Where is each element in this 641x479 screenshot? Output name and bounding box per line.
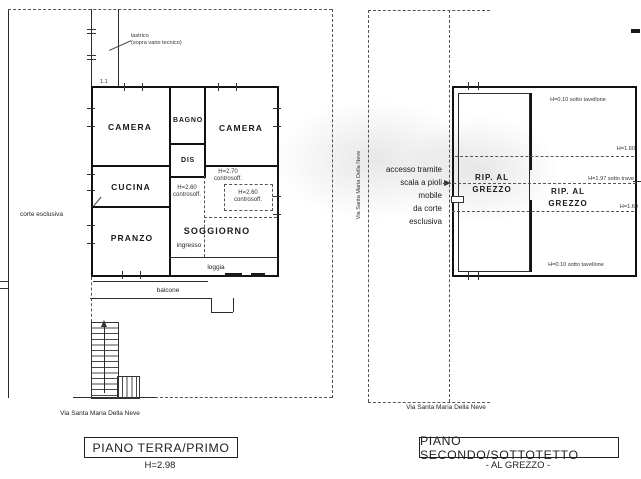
window-tick	[87, 29, 96, 30]
room-label-rip2-line2: GREZZO	[548, 198, 587, 210]
window-tick	[273, 108, 281, 109]
plan-left-title: PIANO TERRA/PRIMO	[92, 441, 229, 455]
wall-inner	[91, 206, 170, 208]
balcony-edge	[90, 298, 211, 299]
height-note-bottom-text: H=0.10 sotto tavellone	[548, 262, 604, 269]
access-note-line: da corte	[358, 202, 442, 215]
room-label-rip2-line1: RIP. AL	[548, 186, 587, 198]
height-note-top-text: H=0.10 sotto tavellone	[550, 97, 606, 104]
ceiling-note-1-text: controsoff.	[214, 176, 242, 183]
ceiling-note-3: H=2.60 controsoff.	[234, 190, 262, 203]
label-loggia: loggia	[207, 264, 224, 271]
street-boundary-top	[368, 10, 490, 11]
lot-boundary-right	[332, 9, 333, 398]
plan-left-height: H=2.98	[145, 460, 176, 471]
lot-boundary-left	[8, 10, 9, 398]
room-label-cucina: CUCINA	[111, 182, 151, 192]
room-label-camera1: CAMERA	[108, 122, 152, 132]
height-note-160-top: H=1.60	[600, 146, 635, 152]
floorplan-canvas: lastrico (sopra vano tecnico) 1.1	[0, 0, 641, 479]
label-balcone: balcone	[157, 287, 180, 294]
roof-label-line2: (sopra vano tecnico)	[131, 40, 182, 46]
wall-outer-right	[277, 86, 279, 277]
balcony-step	[211, 312, 233, 313]
access-opening	[451, 196, 464, 203]
window-tick	[87, 225, 95, 226]
shaft-wall-left	[91, 9, 92, 86]
wall-outer-top	[91, 86, 279, 88]
window-tick	[87, 108, 95, 109]
loggia-pillar	[251, 273, 265, 277]
ceiling-note-2-text: controsoff.	[173, 192, 201, 199]
height-line-160-bottom	[452, 211, 634, 212]
plan-right-subtitle: - AL GREZZO -	[486, 460, 551, 471]
balcony-dashed-edge	[91, 277, 92, 322]
room-label-bagno: BAGNO	[173, 117, 203, 124]
wall-divider	[530, 93, 532, 170]
stair-direction-line	[104, 326, 105, 393]
wall-inner	[169, 143, 206, 145]
room-label-pranzo: PRANZO	[111, 233, 154, 243]
room-label-rip1-line2: GREZZO	[472, 184, 511, 196]
staircase-flight	[117, 376, 140, 399]
window-tick	[478, 82, 479, 90]
boundary-tick	[0, 281, 8, 282]
ceiling-note-1-height: H=2.70	[214, 169, 242, 176]
room-label-rip1-line1: RIP. AL	[472, 172, 511, 184]
window-tick	[122, 271, 123, 279]
height-note-197: H=1.97 sotto trave	[572, 176, 634, 182]
ceiling-zone-dashed	[204, 217, 277, 218]
ground-line-dashed	[155, 397, 332, 398]
window-tick	[273, 126, 281, 127]
street-boundary-bottom	[368, 402, 490, 403]
window-tick	[87, 59, 96, 60]
balcony-step	[233, 298, 234, 312]
street-label-left: Via Santa Maria Della Neve	[60, 410, 140, 417]
window-tick	[236, 83, 237, 91]
dimension-label: 1.1	[100, 79, 108, 85]
height-note-bottom: H=0.10 sotto tavellone	[548, 262, 604, 269]
roof-label-line1: lastrico	[131, 33, 149, 39]
room-label-dis: DIS	[181, 157, 195, 164]
loggia-pillar	[225, 273, 242, 277]
wall-inner	[204, 165, 278, 167]
room-label-camera2: CAMERA	[219, 123, 263, 133]
window-tick	[218, 83, 219, 91]
window-tick	[633, 181, 641, 182]
label-corte-esclusiva: corte esclusiva	[20, 211, 63, 218]
ceiling-note-2: H=2.60 controsoff.	[173, 185, 201, 198]
wall-inner	[169, 176, 206, 178]
balcony-step	[211, 298, 212, 312]
height-line-160-top	[455, 156, 634, 157]
window-tick	[87, 243, 95, 244]
stair-arrow	[101, 320, 107, 327]
window-tick	[87, 190, 95, 191]
window-tick	[140, 271, 141, 279]
loggia-edge	[169, 257, 277, 258]
height-note-160-bottom: H=1.60	[600, 204, 638, 210]
window-tick	[273, 196, 281, 197]
window-tick	[87, 55, 96, 56]
plan-right-title: PIANO SECONDO/SOTTOTETTO	[420, 434, 618, 462]
wall-inner	[91, 165, 170, 167]
plan-left-title-box: PIANO TERRA/PRIMO	[84, 437, 238, 458]
room-label-soggiorno: SOGGIORNO	[184, 226, 250, 236]
access-note-line: scala a pioli	[358, 176, 442, 189]
access-note-line: accesso tramite	[358, 163, 442, 176]
ceiling-note-3-text: controsoff.	[234, 197, 262, 204]
wall-inner	[169, 86, 171, 276]
window-tick	[273, 214, 281, 215]
ceiling-note-1: H=2.70 controsoff.	[214, 169, 242, 182]
access-note-line: esclusiva	[358, 215, 442, 228]
page-mark	[631, 29, 640, 33]
balcony-edge	[93, 281, 208, 282]
window-tick	[468, 82, 469, 90]
wall-outer-left	[91, 86, 93, 277]
ceiling-note-3-height: H=2.60	[234, 190, 262, 197]
street-boundary	[449, 10, 450, 402]
access-note-line: mobile	[358, 189, 442, 202]
window-tick	[87, 174, 95, 175]
window-tick	[142, 83, 143, 91]
label-ingresso: ingresso	[177, 242, 202, 249]
shaft-wall-right	[118, 9, 119, 86]
staircase-flight	[91, 322, 119, 399]
height-note-top: H=0.10 sotto tavellone	[550, 97, 606, 104]
window-tick	[124, 83, 125, 91]
street-label-right: Via Santa Maria Della Neve	[406, 404, 486, 411]
leader-line	[109, 40, 131, 51]
window-tick	[87, 126, 95, 127]
lot-boundary-top	[8, 9, 332, 10]
access-note: accesso tramite scala a pioli mobile da …	[358, 163, 442, 228]
ceiling-note-2-height: H=2.60	[173, 185, 201, 192]
room-label-rip2: RIP. AL GREZZO	[548, 186, 587, 210]
window-tick	[478, 272, 479, 280]
wall-inner	[204, 86, 206, 177]
room-label-rip1: RIP. AL GREZZO	[472, 172, 511, 196]
plan-right-title-box: PIANO SECONDO/SOTTOTETTO	[419, 437, 619, 458]
window-tick	[468, 272, 469, 280]
boundary-tick	[0, 288, 8, 289]
window-tick	[87, 33, 96, 34]
